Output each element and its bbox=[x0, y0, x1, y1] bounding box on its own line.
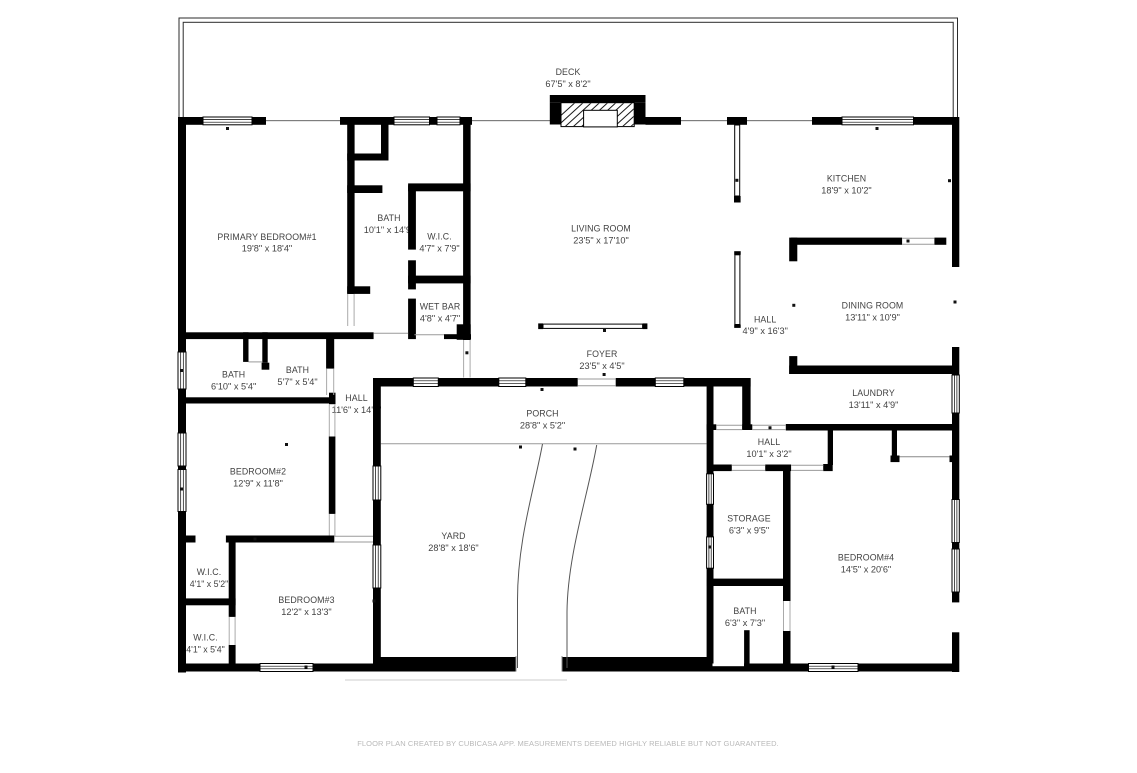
svg-text:W.I.C.: W.I.C. bbox=[193, 632, 218, 642]
svg-text:6'3" x 9'5": 6'3" x 9'5" bbox=[729, 525, 769, 535]
svg-text:28'8" x 5'2": 28'8" x 5'2" bbox=[520, 420, 565, 430]
svg-text:HALL: HALL bbox=[758, 437, 780, 447]
svg-text:18'9" x 10'2": 18'9" x 10'2" bbox=[821, 186, 871, 196]
svg-text:BATH: BATH bbox=[733, 606, 756, 616]
svg-text:BEDROOM#2: BEDROOM#2 bbox=[230, 466, 286, 476]
svg-text:13'11" x 10'9": 13'11" x 10'9" bbox=[845, 312, 900, 322]
svg-text:10'1" x 14'9": 10'1" x 14'9" bbox=[364, 225, 414, 235]
svg-text:28'8" x 18'6": 28'8" x 18'6" bbox=[428, 543, 478, 553]
svg-text:BATH: BATH bbox=[377, 213, 400, 223]
svg-text:6'10" x 5'4": 6'10" x 5'4" bbox=[211, 381, 256, 391]
svg-text:12'9" x 11'8": 12'9" x 11'8" bbox=[233, 478, 283, 488]
svg-text:W.I.C.: W.I.C. bbox=[197, 567, 222, 577]
svg-text:13'11" x 4'9": 13'11" x 4'9" bbox=[849, 400, 899, 410]
svg-text:HALL: HALL bbox=[754, 314, 776, 324]
svg-text:LAUNDRY: LAUNDRY bbox=[852, 388, 895, 398]
svg-text:14'5" x 20'6": 14'5" x 20'6" bbox=[841, 564, 891, 574]
svg-text:23'5" x 4'5": 23'5" x 4'5" bbox=[579, 361, 624, 371]
svg-text:BEDROOM#3: BEDROOM#3 bbox=[278, 595, 334, 605]
svg-text:W.I.C.: W.I.C. bbox=[427, 231, 452, 241]
svg-text:YARD: YARD bbox=[441, 531, 465, 541]
svg-text:STORAGE: STORAGE bbox=[727, 513, 771, 523]
svg-text:19'8" x 18'4": 19'8" x 18'4" bbox=[242, 244, 292, 254]
svg-text:DECK: DECK bbox=[556, 67, 581, 77]
svg-text:23'5" x 17'10": 23'5" x 17'10" bbox=[573, 235, 629, 245]
svg-text:DINING ROOM: DINING ROOM bbox=[842, 300, 904, 310]
svg-text:4'9" x 16'3": 4'9" x 16'3" bbox=[743, 326, 788, 336]
svg-text:10'1" x 3'2": 10'1" x 3'2" bbox=[746, 449, 791, 459]
svg-text:5'7" x 5'4": 5'7" x 5'4" bbox=[277, 377, 317, 387]
svg-text:6'3" x 7'3": 6'3" x 7'3" bbox=[725, 618, 765, 628]
svg-text:LIVING ROOM: LIVING ROOM bbox=[571, 223, 631, 233]
svg-text:BATH: BATH bbox=[286, 365, 309, 375]
svg-text:FLOOR PLAN CREATED BY CUBICASA: FLOOR PLAN CREATED BY CUBICASA APP. MEAS… bbox=[357, 739, 779, 748]
svg-text:KITCHEN: KITCHEN bbox=[827, 174, 866, 184]
svg-text:4'1" x 5'2": 4'1" x 5'2" bbox=[190, 579, 228, 589]
svg-text:PORCH: PORCH bbox=[526, 408, 558, 418]
svg-text:PRIMARY BEDROOM#1: PRIMARY BEDROOM#1 bbox=[217, 232, 316, 242]
svg-text:12'2" x 13'3": 12'2" x 13'3" bbox=[281, 607, 331, 617]
svg-text:WET BAR: WET BAR bbox=[420, 301, 461, 311]
svg-text:67'5" x 8'2": 67'5" x 8'2" bbox=[545, 79, 590, 89]
svg-text:HALL: HALL bbox=[345, 393, 367, 403]
svg-text:4'1" x 5'4": 4'1" x 5'4" bbox=[186, 644, 224, 654]
svg-text:FOYER: FOYER bbox=[587, 349, 618, 359]
svg-text:BEDROOM#4: BEDROOM#4 bbox=[838, 552, 894, 562]
svg-text:4'7" x 7'9": 4'7" x 7'9" bbox=[419, 243, 459, 253]
svg-text:4'8" x 4'7": 4'8" x 4'7" bbox=[420, 313, 460, 323]
svg-text:BATH: BATH bbox=[222, 369, 245, 379]
